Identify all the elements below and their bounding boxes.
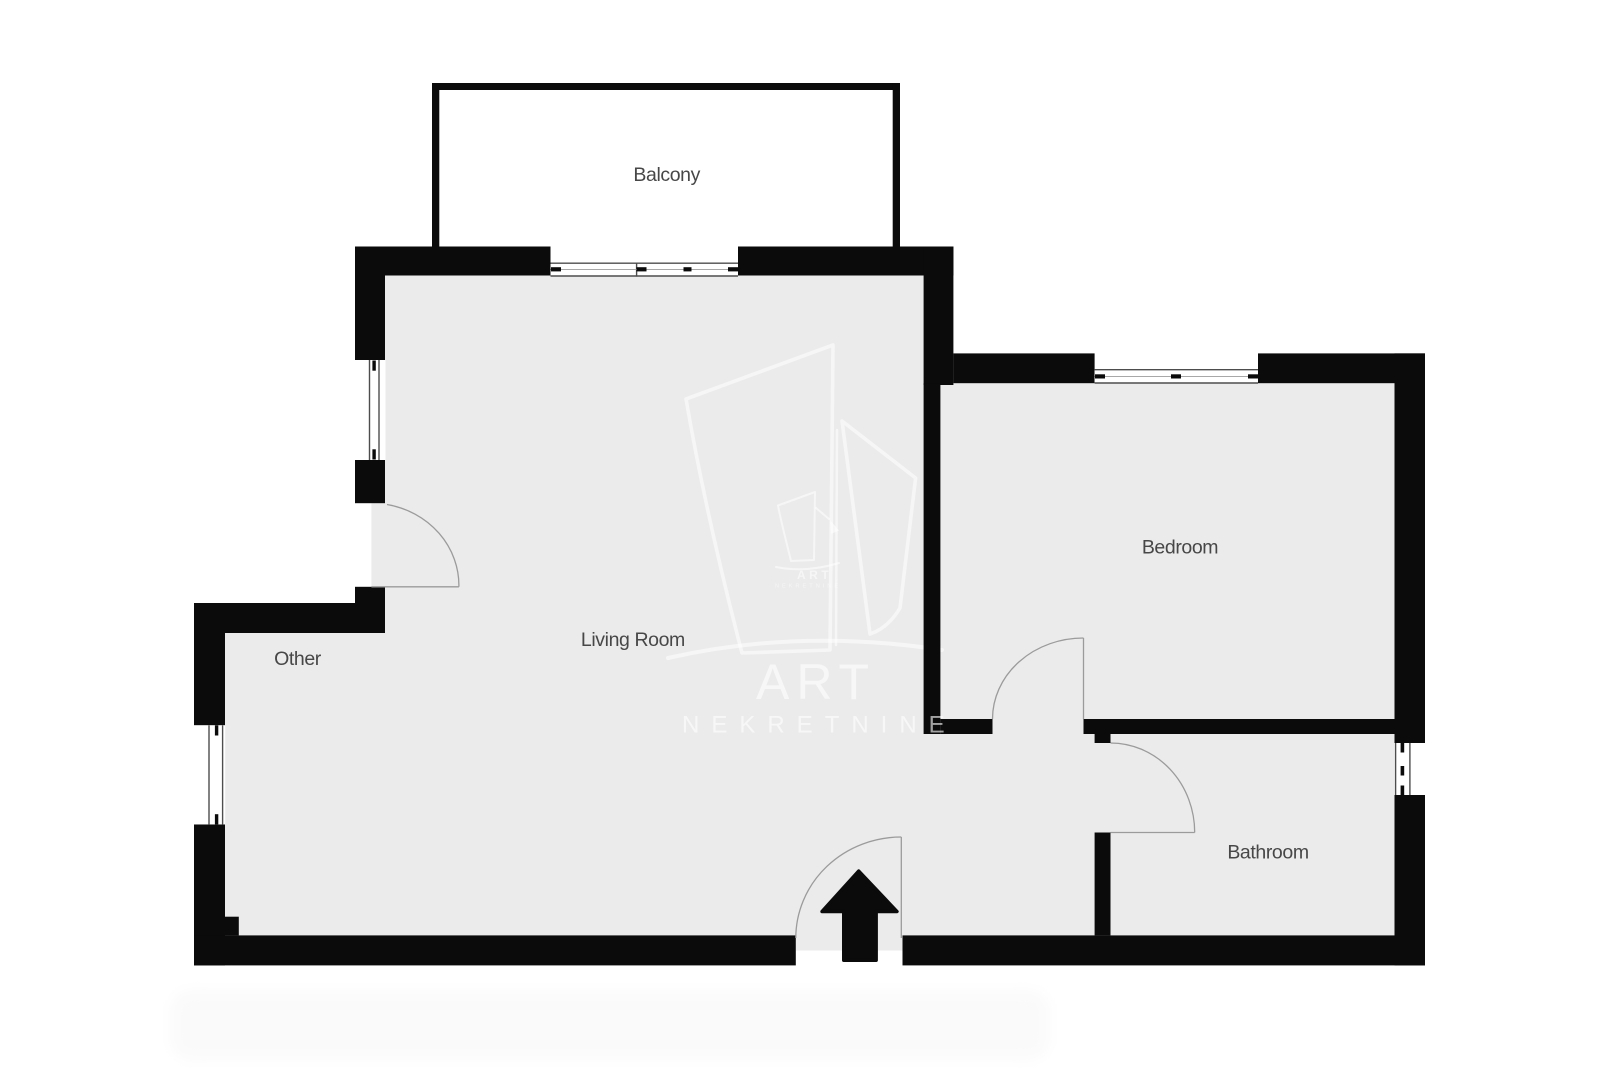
svg-text:NEKRETNINE: NEKRETNINE bbox=[775, 584, 841, 590]
svg-text:ART: ART bbox=[756, 654, 876, 710]
svg-text:Bathroom: Bathroom bbox=[1227, 842, 1308, 864]
svg-text:ART: ART bbox=[797, 568, 832, 582]
svg-text:Other: Other bbox=[274, 648, 322, 670]
svg-text:NEKRETNINE: NEKRETNINE bbox=[682, 712, 957, 739]
svg-text:Living Room: Living Room bbox=[581, 629, 685, 651]
svg-text:Bedroom: Bedroom bbox=[1142, 537, 1218, 559]
svg-text:Balcony: Balcony bbox=[633, 164, 700, 186]
